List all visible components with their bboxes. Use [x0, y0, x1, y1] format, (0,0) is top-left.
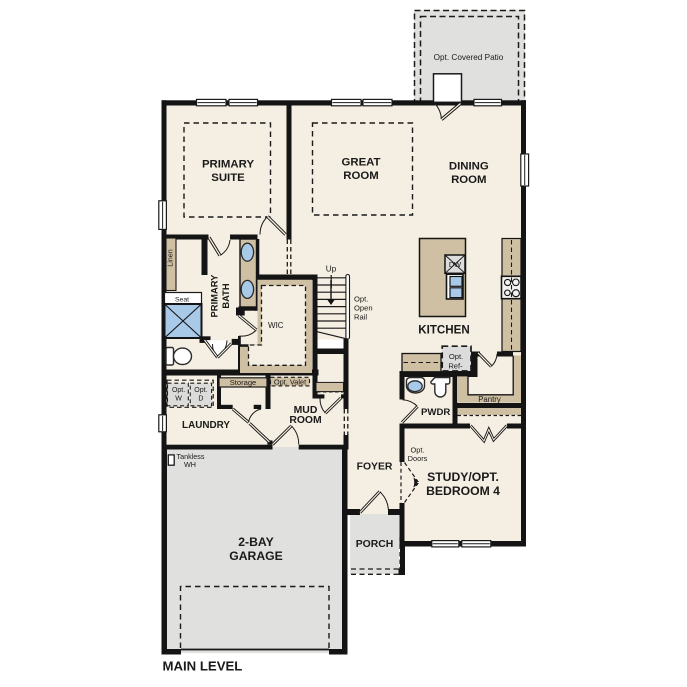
svg-text:W: W	[175, 395, 182, 402]
svg-text:Doors: Doors	[408, 454, 428, 463]
svg-text:WIC: WIC	[268, 321, 284, 330]
svg-text:Seat: Seat	[175, 296, 189, 303]
svg-text:MAIN LEVEL: MAIN LEVEL	[163, 659, 243, 674]
svg-text:D: D	[198, 395, 203, 402]
svg-text:PRIMARY: PRIMARY	[202, 158, 255, 170]
svg-text:GARAGE: GARAGE	[229, 549, 283, 563]
svg-text:BATH: BATH	[220, 283, 231, 309]
svg-text:STUDY/OPT.: STUDY/OPT.	[427, 470, 499, 484]
svg-text:Storage: Storage	[230, 378, 257, 387]
svg-text:2-BAY: 2-BAY	[238, 535, 273, 549]
svg-text:Opt.: Opt.	[194, 387, 207, 394]
svg-text:FOYER: FOYER	[357, 462, 393, 473]
svg-text:SUITE: SUITE	[211, 172, 245, 184]
svg-text:ROOM: ROOM	[343, 170, 378, 182]
svg-text:Up: Up	[326, 265, 337, 274]
svg-text:Linen: Linen	[166, 249, 175, 267]
svg-text:Opt. Valet: Opt. Valet	[274, 377, 306, 386]
svg-text:PRIMARY: PRIMARY	[209, 274, 220, 318]
svg-text:Opt.: Opt.	[354, 295, 368, 304]
svg-text:DW: DW	[449, 260, 461, 269]
svg-text:WH: WH	[184, 460, 196, 469]
svg-text:PORCH: PORCH	[356, 539, 394, 550]
svg-text:Pantry: Pantry	[478, 395, 501, 404]
svg-text:LAUNDRY: LAUNDRY	[182, 420, 230, 431]
svg-text:PWDR: PWDR	[421, 407, 450, 418]
svg-text:DINING: DINING	[449, 160, 489, 172]
svg-text:GREAT: GREAT	[341, 156, 380, 168]
svg-text:Opt. Covered Patio: Opt. Covered Patio	[434, 53, 504, 62]
svg-text:Ref-: Ref-	[448, 362, 463, 371]
svg-text:Open: Open	[354, 304, 373, 313]
svg-text:Opt.: Opt.	[172, 387, 185, 394]
svg-text:KITCHEN: KITCHEN	[418, 324, 470, 337]
svg-text:ROOM: ROOM	[289, 415, 321, 426]
svg-text:ROOM: ROOM	[451, 174, 486, 186]
svg-text:Rail: Rail	[354, 313, 367, 322]
svg-text:Opt.: Opt.	[449, 352, 463, 361]
svg-text:BEDROOM 4: BEDROOM 4	[426, 484, 500, 498]
